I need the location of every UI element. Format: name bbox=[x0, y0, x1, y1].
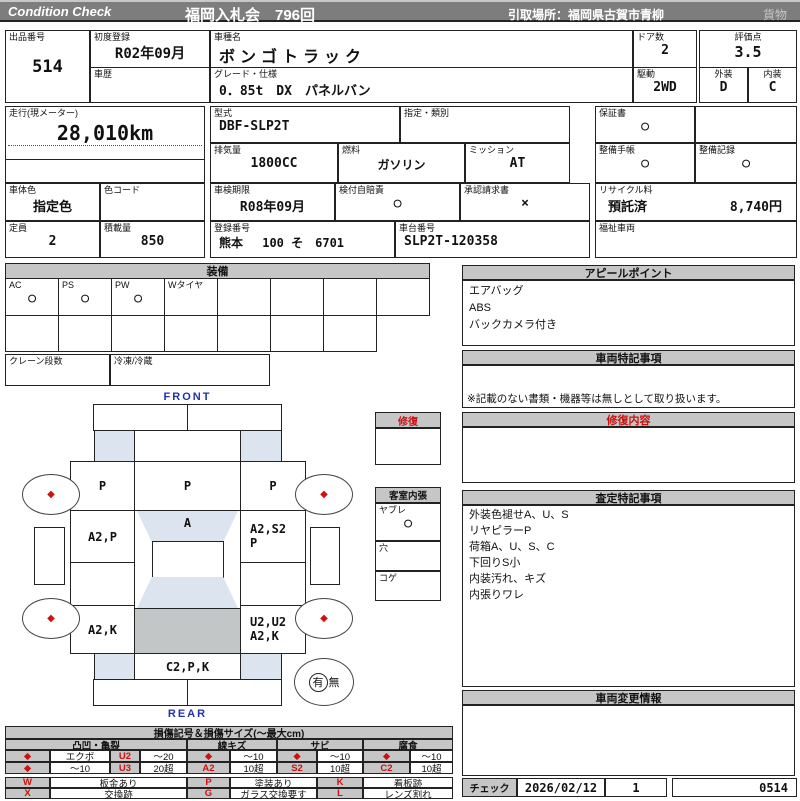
score-label: 評価点 bbox=[700, 31, 796, 43]
registration-number-value: 熊本 100 そ 6701 bbox=[211, 234, 394, 251]
legend-symbol: ◆ bbox=[5, 750, 50, 762]
maintenance-record-value: ○ bbox=[696, 156, 796, 171]
equipment-cell-pw: PW ○ bbox=[111, 278, 165, 316]
cabin-trim-header: 客室内張 bbox=[375, 487, 441, 503]
equipment-wtire-label: Wタイヤ bbox=[165, 279, 217, 291]
inspection-value: R08年09月 bbox=[211, 196, 334, 215]
insurance-label: 検付自賠責 bbox=[336, 184, 459, 196]
maintenance-book-box: 整備手帳 ○ bbox=[595, 143, 695, 183]
damage-diamond-icon: ◆ bbox=[320, 614, 328, 624]
panel-right-mid bbox=[240, 562, 306, 606]
change-info-body bbox=[462, 705, 795, 776]
model-code-label: 型式 bbox=[211, 107, 399, 119]
load-capacity-box: 積載量 850 bbox=[100, 221, 205, 258]
chassis-number-box: 車台番号 SLP2T-120358 bbox=[395, 221, 590, 258]
change-info-header: 車両変更情報 bbox=[462, 690, 795, 705]
exterior-grade-value: D bbox=[700, 80, 747, 95]
doors-value: 2 bbox=[634, 43, 696, 58]
capacity-box: 定員 2 bbox=[5, 221, 100, 258]
freezer-label: 冷凍/冷蔵 bbox=[111, 355, 269, 367]
color-code-box: 色コード bbox=[100, 183, 205, 221]
appeal-line: バックカメラ付き bbox=[469, 317, 788, 334]
repair-content-header: 修復内容 bbox=[462, 412, 795, 427]
damage-diamond-icon: ◆ bbox=[47, 614, 55, 624]
panel-front-center: P bbox=[134, 461, 241, 511]
score-value: 3.5 bbox=[700, 43, 796, 61]
legend-desc: 10超 bbox=[317, 762, 363, 774]
warranty-label: 保証書 bbox=[596, 107, 694, 119]
cabin-trim-hole-label: 穴 bbox=[376, 542, 440, 554]
exterior-grade-box: 外装 D bbox=[699, 67, 748, 103]
rear-bumper-right bbox=[187, 679, 282, 706]
equipment-cell bbox=[270, 315, 324, 352]
equipment-cell bbox=[376, 278, 430, 316]
registration-number-box: 登録番号 熊本 100 そ 6701 bbox=[210, 221, 395, 258]
warranty-box: 保証書 ○ bbox=[595, 106, 695, 143]
crane-stages-label: クレーン段数 bbox=[6, 355, 109, 367]
appeal-line: エアバッグ bbox=[469, 283, 788, 300]
first-registration-box: 初度登録 R02年09月 bbox=[90, 30, 210, 68]
legend-symbol: ◆ bbox=[363, 750, 410, 762]
appeal-line: ABS bbox=[469, 300, 788, 317]
approval-request-value: × bbox=[461, 196, 589, 211]
inspection-box: 車検期限 R08年09月 bbox=[210, 183, 335, 221]
insurance-value: ○ bbox=[336, 196, 459, 211]
exterior-grade-label: 外装 bbox=[700, 68, 747, 80]
legend-symbol: ◆ bbox=[187, 750, 230, 762]
windshield-code: A bbox=[135, 516, 240, 530]
equipment-cell-wtire: Wタイヤ bbox=[164, 278, 218, 316]
legend-desc: 〜10 bbox=[50, 762, 110, 774]
check-count: 1 bbox=[605, 778, 667, 797]
fuel-value: ガソリン bbox=[339, 156, 464, 173]
score-box: 評価点 3.5 bbox=[699, 30, 797, 68]
chassis-number-label: 車台番号 bbox=[396, 222, 589, 234]
fuel-box: 燃料 ガソリン bbox=[338, 143, 465, 183]
legend-symbol: W bbox=[5, 777, 50, 788]
model-name-value: ボンゴトラック bbox=[211, 43, 632, 67]
repair-mini-header: 修復 bbox=[375, 412, 441, 428]
equipment-cell bbox=[217, 315, 271, 352]
damage-diamond-icon: ◆ bbox=[320, 490, 328, 500]
legend-desc: 10超 bbox=[410, 762, 453, 774]
legend-symbol: A2 bbox=[187, 762, 230, 774]
rear-cowl-left bbox=[94, 653, 135, 680]
transmission-label: ミッション bbox=[466, 144, 569, 156]
assessment-notes-body: 外装色褪せA、U、S リヤピラーP 荷箱A、U、S、C 下回りS小 内装汚れ、キ… bbox=[462, 505, 795, 687]
spare-tire-has-circled: 有 bbox=[309, 673, 328, 692]
front-bumper-right bbox=[187, 404, 282, 431]
legend-symbol: X bbox=[5, 788, 50, 799]
vehicle-history-box: 車歴 bbox=[90, 67, 210, 103]
equipment-cell bbox=[5, 315, 59, 352]
divider-solid bbox=[6, 159, 204, 160]
rear-label: REAR bbox=[130, 708, 245, 720]
welfare-vehicle-label: 福祉車両 bbox=[596, 222, 796, 234]
panel-right-door: A2,S2 P bbox=[240, 510, 306, 563]
interior-grade-value: C bbox=[749, 80, 796, 95]
designation-label: 指定・類別 bbox=[401, 107, 569, 119]
equipment-cell bbox=[217, 278, 271, 316]
equipment-cell bbox=[58, 315, 112, 352]
assessment-line: リヤピラーP bbox=[469, 524, 788, 540]
wheel-front-right: ◆ bbox=[295, 474, 353, 515]
welfare-vehicle-box: 福祉車両 bbox=[595, 221, 797, 258]
repair-mini-body bbox=[375, 428, 441, 465]
grade-value: 0．85t DX パネルバン bbox=[211, 80, 632, 99]
wheel-rear-right: ◆ bbox=[295, 598, 353, 639]
rear-bumper-left bbox=[93, 679, 188, 706]
designation-box: 指定・類別 bbox=[400, 106, 570, 143]
legend-symbol: S2 bbox=[277, 762, 317, 774]
mileage-value: 28,010km bbox=[6, 121, 204, 145]
drive-label: 駆動 bbox=[634, 68, 696, 80]
displacement-value: 1800CC bbox=[211, 156, 337, 171]
recycle-status: 預託済 bbox=[608, 196, 647, 215]
grade-box: グレード・仕様 0．85t DX パネルバン bbox=[210, 67, 633, 103]
legend-symbol: ◆ bbox=[5, 762, 50, 774]
equipment-ps-value: ○ bbox=[59, 291, 111, 306]
equipment-cell bbox=[323, 278, 377, 316]
spare-tire-none: 無 bbox=[329, 674, 340, 690]
front-cowl-center bbox=[134, 430, 241, 462]
repair-content-body bbox=[462, 427, 795, 483]
interior-grade-label: 内装 bbox=[749, 68, 796, 80]
freezer-box: 冷凍/冷蔵 bbox=[110, 354, 270, 386]
cab-center-area: A bbox=[134, 510, 241, 609]
cabin-trim-tear-box: ヤブレ ○ bbox=[375, 503, 441, 541]
equipment-cell-ps: PS ○ bbox=[58, 278, 112, 316]
assessment-line: 荷箱A、U、S、C bbox=[469, 540, 788, 556]
panel-right-rear-line2: A2,K bbox=[250, 630, 305, 643]
warranty-spare-box bbox=[695, 106, 797, 143]
pickup-location: 引取場所：福岡県古賀市青柳 bbox=[508, 6, 664, 23]
legend-symbol: L bbox=[317, 788, 363, 799]
front-cowl-left bbox=[94, 430, 135, 462]
recycle-fee-box: リサイクル料 預託済 8,740円 bbox=[595, 183, 797, 221]
capacity-value: 2 bbox=[6, 234, 99, 249]
cargo-bed bbox=[134, 608, 241, 654]
legend-section-rust: サビ bbox=[277, 739, 363, 750]
equipment-ac-value: ○ bbox=[6, 291, 58, 306]
body-color-label: 車体色 bbox=[6, 184, 99, 196]
lot-number-value: 514 bbox=[6, 57, 89, 77]
equipment-cell bbox=[323, 315, 377, 352]
mirror-right bbox=[310, 527, 340, 585]
legend-symbol: C2 bbox=[363, 762, 410, 774]
check-label: チェック bbox=[462, 778, 517, 797]
maintenance-record-label: 整備記録 bbox=[696, 144, 796, 156]
appeal-points-header: アピールポイント bbox=[462, 265, 795, 280]
divider-dotted bbox=[8, 145, 202, 146]
cabin-trim-hole-box: 穴 bbox=[375, 541, 441, 571]
wheel-rear-left: ◆ bbox=[22, 598, 80, 639]
equipment-pw-label: PW bbox=[112, 279, 164, 291]
equipment-pw-value: ○ bbox=[112, 291, 164, 306]
insurance-box: 検付自賠責 ○ bbox=[335, 183, 460, 221]
equipment-ac-label: AC bbox=[6, 279, 58, 291]
legend-desc: 10超 bbox=[230, 762, 277, 774]
model-code-box: 型式 DBF-SLP2T bbox=[210, 106, 400, 143]
legend-symbol: G bbox=[187, 788, 230, 799]
rear-cowl-right bbox=[240, 653, 282, 680]
mileage-label: 走行(現メーター) bbox=[6, 107, 204, 119]
legend-desc: ガラス交換要す bbox=[230, 788, 317, 799]
panel-left-mid bbox=[70, 562, 135, 606]
approval-request-box: 承認請求書 × bbox=[460, 183, 590, 221]
cabin-trim-burn-box: コゲ bbox=[375, 571, 441, 601]
cabin-trim-tear-label: ヤブレ bbox=[376, 504, 440, 516]
vehicle-notes-footnote: ※記載のない書類・機器等は無しとして取り扱います。 bbox=[463, 390, 794, 407]
assessment-line: 外装色褪せA、U、S bbox=[469, 508, 788, 524]
legend-symbol: K bbox=[317, 777, 363, 788]
recycle-amount: 8,740円 bbox=[730, 196, 782, 215]
warranty-value: ○ bbox=[596, 119, 694, 134]
legend-symbol: U3 bbox=[110, 762, 140, 774]
sheet-number: 0514 bbox=[672, 778, 797, 797]
lot-number-label: 出品番号 bbox=[6, 31, 89, 43]
cab-roof bbox=[152, 541, 224, 578]
equipment-cell bbox=[164, 315, 218, 352]
vehicle-notes-body: ※記載のない書類・機器等は無しとして取り扱います。 bbox=[462, 365, 795, 408]
model-code-value: DBF-SLP2T bbox=[211, 119, 399, 134]
body-color-box: 車体色 指定色 bbox=[5, 183, 100, 221]
panel-right-door-line1: A2,S2 bbox=[250, 523, 305, 536]
color-code-label: 色コード bbox=[101, 184, 204, 196]
fuel-label: 燃料 bbox=[339, 144, 464, 156]
load-capacity-label: 積載量 bbox=[101, 222, 204, 234]
first-registration-value: R02年09月 bbox=[91, 43, 209, 63]
rear-window-shape bbox=[135, 577, 240, 608]
assessment-line: 下回りS小 bbox=[469, 556, 788, 572]
equipment-ps-label: PS bbox=[59, 279, 111, 291]
transmission-box: ミッション AT bbox=[465, 143, 570, 183]
panel-rear-center: C2,P,K bbox=[134, 653, 241, 680]
auction-title: 福岡入札会 796回 bbox=[185, 4, 315, 25]
drive-box: 駆動 2WD bbox=[633, 67, 697, 103]
assessment-notes-header: 査定特記事項 bbox=[462, 490, 795, 505]
appeal-points-body: エアバッグ ABS バックカメラ付き bbox=[462, 280, 795, 346]
legend-desc: レンズ割れ bbox=[363, 788, 453, 799]
vehicle-notes-header: 車両特記事項 bbox=[462, 350, 795, 365]
panel-right-door-line2: P bbox=[250, 537, 305, 550]
front-bumper-left bbox=[93, 404, 188, 431]
panel-left-door: A2,P bbox=[70, 510, 135, 563]
crane-stages-box: クレーン段数 bbox=[5, 354, 110, 386]
drive-value: 2WD bbox=[634, 80, 696, 95]
capacity-label: 定員 bbox=[6, 222, 99, 234]
interior-grade-box: 内装 C bbox=[748, 67, 797, 103]
equipment-cell bbox=[111, 315, 165, 352]
mirror-left bbox=[34, 527, 65, 585]
cabin-trim-burn-label: コゲ bbox=[376, 572, 440, 584]
legend-symbol: P bbox=[187, 777, 230, 788]
maintenance-book-value: ○ bbox=[596, 156, 694, 171]
body-color-value: 指定色 bbox=[6, 196, 99, 215]
recycle-fee-value: 預託済 8,740円 bbox=[596, 196, 796, 215]
doors-box: ドア数 2 bbox=[633, 30, 697, 68]
spare-tire-indicator: 有 無 bbox=[294, 658, 354, 706]
maintenance-book-label: 整備手帳 bbox=[596, 144, 694, 156]
vehicle-history-label: 車歴 bbox=[91, 68, 209, 80]
wheel-front-left: ◆ bbox=[22, 474, 80, 515]
lot-number-box: 出品番号 514 bbox=[5, 30, 90, 103]
category-badge: 貨物 bbox=[763, 6, 787, 23]
front-cowl-right bbox=[240, 430, 282, 462]
registration-number-label: 登録番号 bbox=[211, 222, 394, 234]
model-name-box: 車種名 ボンゴトラック bbox=[210, 30, 633, 68]
equipment-cell bbox=[270, 278, 324, 316]
doors-label: ドア数 bbox=[634, 31, 696, 43]
displacement-label: 排気量 bbox=[211, 144, 337, 156]
first-registration-label: 初度登録 bbox=[91, 31, 209, 43]
recycle-fee-label: リサイクル料 bbox=[596, 184, 796, 196]
legend-symbol: ◆ bbox=[277, 750, 317, 762]
assessment-line: 内装汚れ、キズ bbox=[469, 572, 788, 588]
model-name-label: 車種名 bbox=[211, 31, 632, 43]
transmission-value: AT bbox=[466, 156, 569, 171]
check-date: 2026/02/12 bbox=[517, 778, 605, 797]
grade-label: グレード・仕様 bbox=[211, 68, 632, 80]
mileage-box: 走行(現メーター) 28,010km bbox=[5, 106, 205, 183]
assessment-line: 内張りワレ bbox=[469, 588, 788, 604]
panel-left-rear: A2,K bbox=[70, 605, 135, 654]
legend-desc: 交換跡 bbox=[50, 788, 187, 799]
equipment-header: 装備 bbox=[5, 263, 430, 279]
title-bar: Condition Check 福岡入札会 796回 引取場所：福岡県古賀市青柳… bbox=[0, 0, 800, 22]
legend-desc: 20超 bbox=[140, 762, 187, 774]
load-capacity-value: 850 bbox=[101, 234, 204, 249]
front-label: FRONT bbox=[130, 391, 245, 403]
panel-front-left: P bbox=[70, 461, 135, 511]
inspection-label: 車検期限 bbox=[211, 184, 334, 196]
chassis-number-value: SLP2T-120358 bbox=[396, 234, 589, 249]
brand-logo: Condition Check bbox=[8, 4, 111, 19]
displacement-box: 排気量 1800CC bbox=[210, 143, 338, 183]
maintenance-record-box: 整備記録 ○ bbox=[695, 143, 797, 183]
equipment-cell-ac: AC ○ bbox=[5, 278, 59, 316]
approval-request-label: 承認請求書 bbox=[461, 184, 589, 196]
legend-symbol: U2 bbox=[110, 750, 140, 762]
cabin-trim-tear-value: ○ bbox=[376, 516, 440, 531]
auction-condition-sheet: { "header": { "brand": "Condition Check"… bbox=[0, 0, 800, 800]
damage-diamond-icon: ◆ bbox=[47, 490, 55, 500]
